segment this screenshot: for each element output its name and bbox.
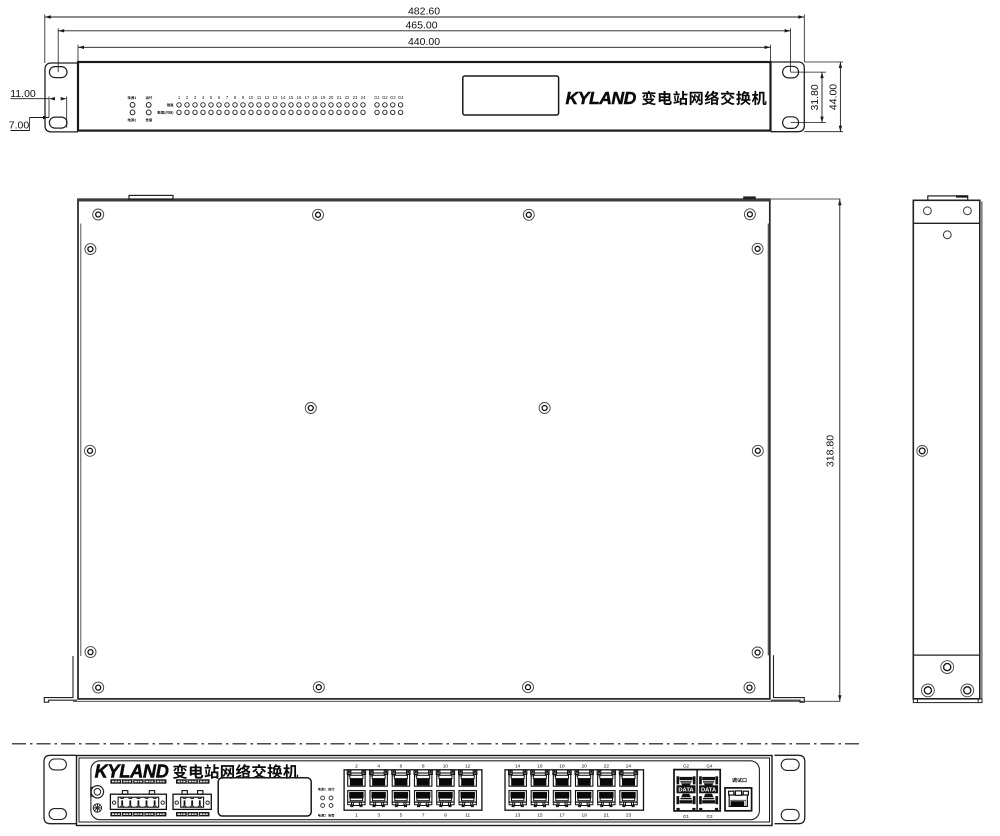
svg-text:31.80: 31.80 bbox=[809, 84, 821, 110]
svg-text:14: 14 bbox=[281, 95, 286, 100]
svg-text:16: 16 bbox=[297, 95, 302, 100]
svg-text:DATA: DATA bbox=[678, 788, 694, 794]
svg-text:G4: G4 bbox=[706, 764, 713, 769]
svg-text:12: 12 bbox=[265, 95, 270, 100]
svg-text:6: 6 bbox=[400, 763, 403, 769]
svg-text:23: 23 bbox=[353, 95, 358, 100]
svg-text:44.00: 44.00 bbox=[828, 84, 840, 110]
svg-text:KYLAND: KYLAND bbox=[95, 761, 169, 781]
svg-text:G1: G1 bbox=[374, 95, 380, 100]
svg-text:7.00: 7.00 bbox=[9, 120, 30, 132]
svg-text:G3: G3 bbox=[706, 814, 713, 819]
svg-text:24: 24 bbox=[626, 763, 632, 769]
svg-text:19: 19 bbox=[321, 95, 326, 100]
svg-text:5: 5 bbox=[400, 812, 403, 818]
svg-text:21: 21 bbox=[604, 812, 610, 818]
svg-text:15: 15 bbox=[537, 812, 543, 818]
svg-text:1: 1 bbox=[355, 812, 358, 818]
svg-text:19: 19 bbox=[582, 812, 588, 818]
svg-text:24: 24 bbox=[361, 95, 366, 100]
svg-text:23: 23 bbox=[626, 812, 632, 818]
svg-text:20: 20 bbox=[582, 763, 588, 769]
svg-text:465.00: 465.00 bbox=[405, 20, 437, 32]
svg-text:18: 18 bbox=[313, 95, 318, 100]
svg-text:2: 2 bbox=[355, 763, 358, 769]
svg-text:7: 7 bbox=[422, 812, 425, 818]
svg-text:14: 14 bbox=[515, 763, 521, 769]
svg-text:482.60: 482.60 bbox=[408, 6, 440, 18]
svg-text:17: 17 bbox=[559, 812, 565, 818]
svg-text:22: 22 bbox=[345, 95, 350, 100]
svg-text:G2: G2 bbox=[382, 95, 388, 100]
svg-text:22: 22 bbox=[604, 763, 610, 769]
svg-text:18: 18 bbox=[559, 763, 565, 769]
svg-text:3: 3 bbox=[377, 812, 380, 818]
svg-text:G3: G3 bbox=[390, 95, 396, 100]
svg-text:10: 10 bbox=[249, 95, 254, 100]
svg-text:13: 13 bbox=[515, 812, 521, 818]
svg-text:11: 11 bbox=[257, 95, 262, 100]
svg-text:G2: G2 bbox=[683, 764, 690, 769]
svg-text:10: 10 bbox=[443, 763, 449, 769]
svg-text:20: 20 bbox=[329, 95, 334, 100]
svg-text:DATA: DATA bbox=[701, 788, 717, 794]
svg-text:15: 15 bbox=[289, 95, 294, 100]
svg-text:318.80: 318.80 bbox=[825, 435, 837, 467]
svg-text:G1: G1 bbox=[683, 814, 690, 819]
svg-text:4: 4 bbox=[377, 763, 380, 769]
svg-text:12: 12 bbox=[465, 763, 471, 769]
svg-text:11.00: 11.00 bbox=[10, 88, 36, 100]
svg-text:11: 11 bbox=[465, 812, 470, 818]
svg-text:8: 8 bbox=[422, 763, 425, 769]
svg-text:21: 21 bbox=[337, 95, 342, 100]
svg-text:17: 17 bbox=[305, 95, 310, 100]
svg-text:9: 9 bbox=[444, 812, 447, 818]
svg-text:16: 16 bbox=[537, 763, 543, 769]
svg-text:KYLAND: KYLAND bbox=[566, 88, 637, 108]
svg-text:13: 13 bbox=[273, 95, 278, 100]
svg-text:440.00: 440.00 bbox=[408, 36, 440, 48]
svg-text:G4: G4 bbox=[398, 95, 404, 100]
